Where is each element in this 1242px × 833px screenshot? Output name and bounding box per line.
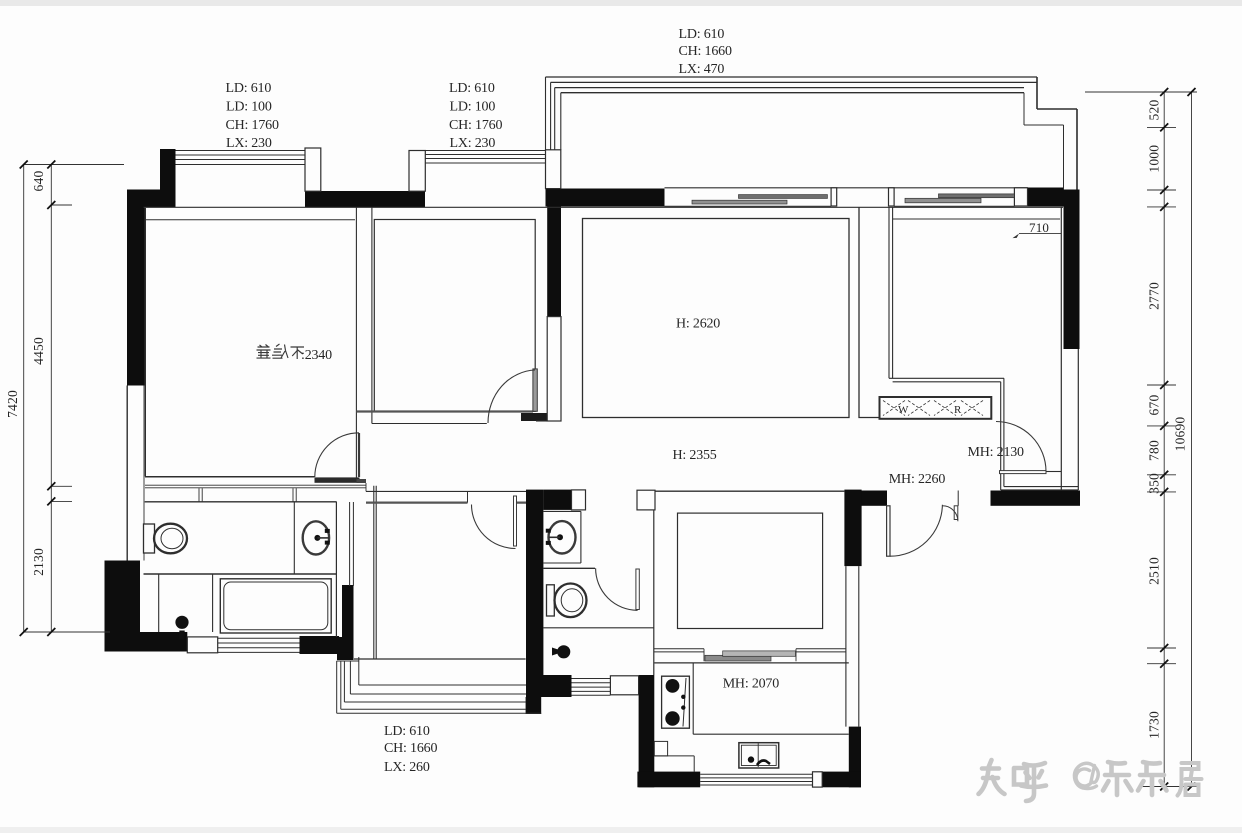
svg-text:LD: 100: LD: 100 — [450, 100, 496, 115]
svg-text:LX: 260: LX: 260 — [384, 760, 430, 775]
svg-text:LD: 610: LD: 610 — [679, 27, 725, 42]
svg-text:LX: 470: LX: 470 — [679, 62, 725, 77]
svg-text:2130: 2130 — [31, 548, 46, 576]
svg-text:640: 640 — [31, 171, 46, 192]
svg-text:LX: 230: LX: 230 — [450, 136, 496, 151]
svg-text:H: 2355: H: 2355 — [673, 448, 717, 463]
svg-text:MH: 2260: MH: 2260 — [889, 472, 946, 487]
svg-text:LX: 230: LX: 230 — [226, 136, 272, 151]
svg-text:R: R — [954, 404, 962, 416]
svg-text:H: 2620: H: 2620 — [676, 317, 720, 332]
svg-text:1730: 1730 — [1147, 711, 1162, 739]
svg-text:520: 520 — [1147, 100, 1162, 121]
svg-text:670: 670 — [1147, 395, 1162, 416]
svg-text:10690: 10690 — [1173, 417, 1188, 452]
svg-text:1000: 1000 — [1147, 145, 1162, 173]
svg-text:2770: 2770 — [1147, 282, 1162, 310]
svg-text:CH: 1660: CH: 1660 — [384, 741, 437, 756]
svg-text:MH: 2070: MH: 2070 — [723, 677, 780, 692]
svg-text:CH: 1660: CH: 1660 — [679, 44, 732, 59]
svg-text:W: W — [898, 404, 909, 416]
svg-text:4450: 4450 — [31, 337, 46, 365]
svg-text:LD: 100: LD: 100 — [226, 100, 272, 115]
svg-text:2510: 2510 — [1147, 557, 1162, 585]
svg-text:CH: 1760: CH: 1760 — [226, 118, 279, 133]
svg-text:710: 710 — [1029, 220, 1049, 235]
svg-text:MH: 2130: MH: 2130 — [968, 445, 1025, 460]
svg-text::2340: :2340 — [301, 348, 332, 363]
svg-text:LD: 610: LD: 610 — [226, 81, 272, 96]
svg-text:7420: 7420 — [5, 390, 20, 418]
svg-text:LD: 610: LD: 610 — [449, 81, 495, 96]
svg-text:350: 350 — [1147, 473, 1162, 494]
svg-text:780: 780 — [1147, 440, 1162, 461]
svg-text:LD: 610: LD: 610 — [384, 724, 430, 739]
svg-text:CH: 1760: CH: 1760 — [449, 118, 502, 133]
